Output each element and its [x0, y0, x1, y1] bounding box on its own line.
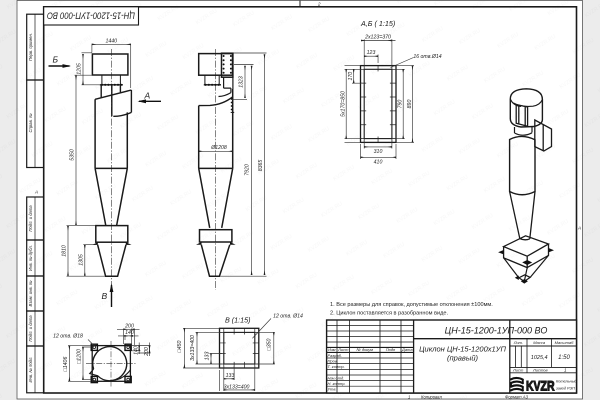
svg-text:1:50: 1:50 — [558, 355, 570, 361]
svg-text:Нач.отд.: Нач.отд. — [328, 376, 345, 381]
svg-text:В: В — [102, 291, 108, 301]
svg-text:В (1:15): В (1:15) — [225, 316, 251, 325]
svg-text:2х123=370: 2х123=370 — [364, 34, 391, 40]
svg-text:123: 123 — [367, 50, 376, 56]
svg-text:Перв. примен.: Перв. примен. — [28, 33, 33, 61]
svg-text:Циклон ЦН-15-1200х1УП: Циклон ЦН-15-1200х1УП — [419, 344, 506, 353]
svg-text:KVZR: KVZR — [526, 378, 555, 394]
svg-text:1. Все размеры для справок, до: 1. Все размеры для справок, допустимые о… — [330, 302, 493, 308]
svg-text:200: 200 — [124, 323, 134, 329]
svg-text:Справ. №: Справ. № — [28, 113, 33, 132]
svg-text:Листов: Листов — [532, 368, 548, 373]
svg-text:Подп. и дата: Подп. и дата — [28, 315, 33, 342]
svg-text:Б: Б — [53, 55, 59, 65]
svg-text:Подп. и дата: Подп. и дата — [28, 205, 33, 232]
svg-text:1440: 1440 — [106, 39, 118, 45]
svg-text:Взам. инв. №: Взам. инв. № — [28, 280, 33, 306]
svg-text:8365: 8365 — [258, 160, 264, 172]
svg-text:133: 133 — [205, 352, 211, 361]
svg-text:А: А — [577, 226, 581, 231]
svg-text:(правый): (правый) — [447, 353, 479, 362]
svg-text:12 отв. Ø18: 12 отв. Ø18 — [53, 334, 83, 340]
svg-text:890: 890 — [407, 100, 413, 109]
svg-text:3х133=400: 3х133=400 — [224, 384, 250, 390]
svg-text:16 отв.Ø14: 16 отв.Ø14 — [413, 54, 441, 60]
svg-text:ЦН-15-1200-1УП-000 ВО: ЦН-15-1200-1УП-000 ВО — [445, 326, 548, 336]
svg-text:133: 133 — [226, 373, 235, 379]
svg-text:2: 2 — [317, 2, 321, 7]
svg-text:1: 1 — [408, 394, 410, 399]
svg-text:Формат А3: Формат А3 — [505, 394, 529, 399]
svg-text:410: 410 — [374, 159, 383, 165]
svg-text:Подп: Подп — [386, 347, 396, 352]
svg-text:ЦН-15-1200-1УП-000 ВО: ЦН-15-1200-1УП-000 ВО — [47, 11, 135, 21]
svg-text:Масса: Масса — [533, 340, 546, 345]
svg-text:5350: 5350 — [70, 149, 76, 161]
svg-text:1810: 1810 — [62, 245, 68, 257]
svg-text:Лист: Лист — [512, 368, 524, 373]
svg-text:1305: 1305 — [78, 254, 84, 266]
svg-text:А: А — [34, 190, 38, 195]
svg-text:Дата: Дата — [401, 347, 413, 352]
svg-text:Лист: Лист — [337, 347, 349, 352]
svg-text:1025,4: 1025,4 — [531, 355, 548, 361]
svg-text:№ докум: № докум — [357, 347, 374, 352]
svg-text:Инв. № подл.: Инв. № подл. — [28, 357, 33, 383]
svg-text:140: 140 — [125, 330, 134, 336]
svg-text:140: 140 — [134, 346, 140, 355]
svg-text:□350: □350 — [267, 338, 273, 350]
svg-text:1323: 1323 — [239, 76, 245, 88]
svg-text:170: 170 — [348, 72, 354, 81]
svg-text:□450: □450 — [177, 340, 183, 352]
svg-text:А: А — [144, 91, 151, 101]
svg-text:2. Циклон поставляется в разоб: 2. Циклон поставляется в разобранном вид… — [330, 311, 448, 317]
svg-text:Лит.: Лит. — [513, 340, 523, 345]
svg-text:790: 790 — [398, 100, 404, 109]
svg-text:12 отв. Ø14: 12 отв. Ø14 — [273, 314, 303, 320]
svg-text:1205: 1205 — [77, 63, 83, 75]
svg-text:Пров.: Пров. — [328, 358, 339, 363]
svg-text:Т. контр.: Т. контр. — [328, 364, 345, 369]
svg-text:5х170=850: 5х170=850 — [341, 91, 347, 117]
svg-text:Н. контр.: Н. контр. — [328, 381, 346, 386]
svg-text:Ø1208: Ø1208 — [210, 145, 227, 151]
svg-text:Копировал: Копировал — [421, 394, 442, 399]
svg-text:□1406: □1406 — [63, 357, 69, 372]
svg-text:3х133=400: 3х133=400 — [190, 335, 196, 361]
svg-text:Утв.: Утв. — [328, 387, 337, 392]
svg-text:Масштаб: Масштаб — [555, 340, 574, 345]
svg-text:Изм: Изм — [328, 347, 336, 352]
svg-text:Инв. № дубл.: Инв. № дубл. — [28, 245, 33, 271]
svg-text:7920: 7920 — [245, 164, 251, 176]
svg-text:310: 310 — [374, 149, 383, 155]
svg-text:Котельный: Котельный — [556, 379, 578, 383]
svg-text:А,Б ( 1:15): А,Б ( 1:15) — [360, 19, 395, 28]
svg-text:завод РЭП: завод РЭП — [555, 386, 575, 390]
svg-text:□1200: □1200 — [77, 349, 83, 364]
svg-text:Разраб.: Разраб. — [328, 353, 342, 358]
svg-text:200: 200 — [144, 347, 150, 357]
